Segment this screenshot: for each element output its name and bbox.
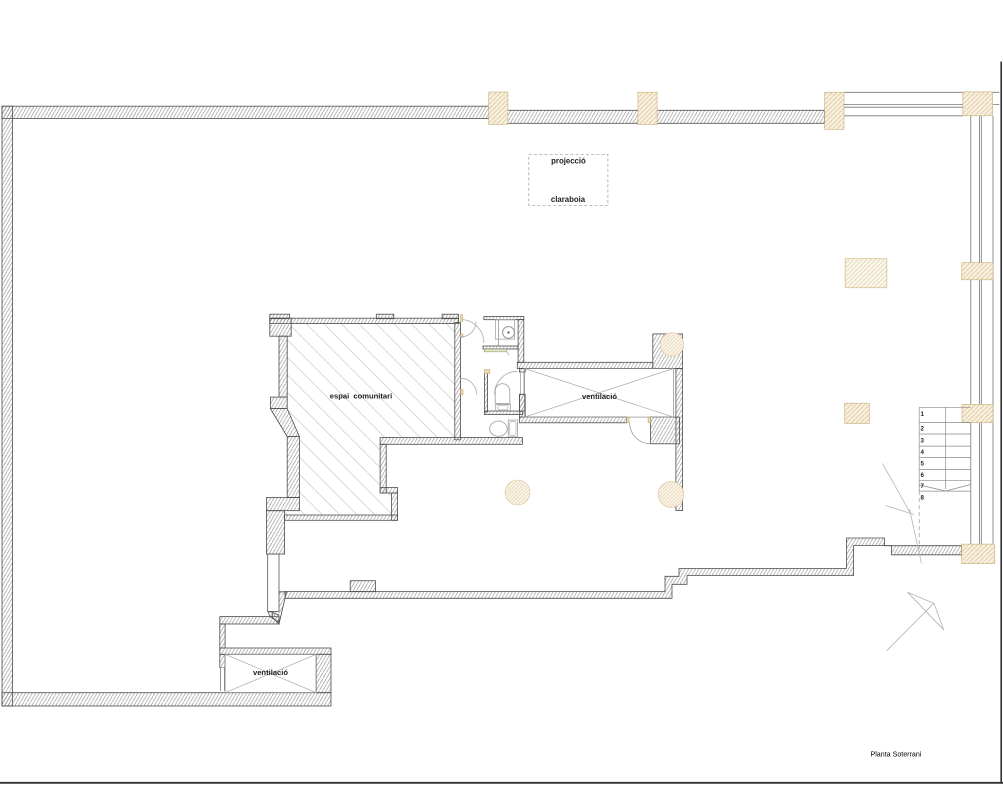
- svg-text:espai comunitari: espai comunitari: [330, 391, 392, 400]
- svg-text:1: 1: [921, 411, 925, 418]
- svg-text:3: 3: [921, 438, 925, 445]
- svg-text:6: 6: [921, 472, 925, 479]
- svg-text:claraboia: claraboia: [551, 195, 586, 204]
- svg-text:2: 2: [921, 426, 925, 433]
- svg-text:8: 8: [921, 495, 925, 502]
- svg-text:4: 4: [921, 449, 925, 456]
- svg-text:7: 7: [921, 483, 925, 490]
- svg-text:Planta Soterrani: Planta Soterrani: [871, 750, 922, 758]
- svg-text:5: 5: [921, 461, 925, 468]
- svg-text:ventilació: ventilació: [253, 668, 288, 677]
- svg-text:ventilació: ventilació: [582, 392, 617, 401]
- svg-text:projecció: projecció: [551, 157, 586, 166]
